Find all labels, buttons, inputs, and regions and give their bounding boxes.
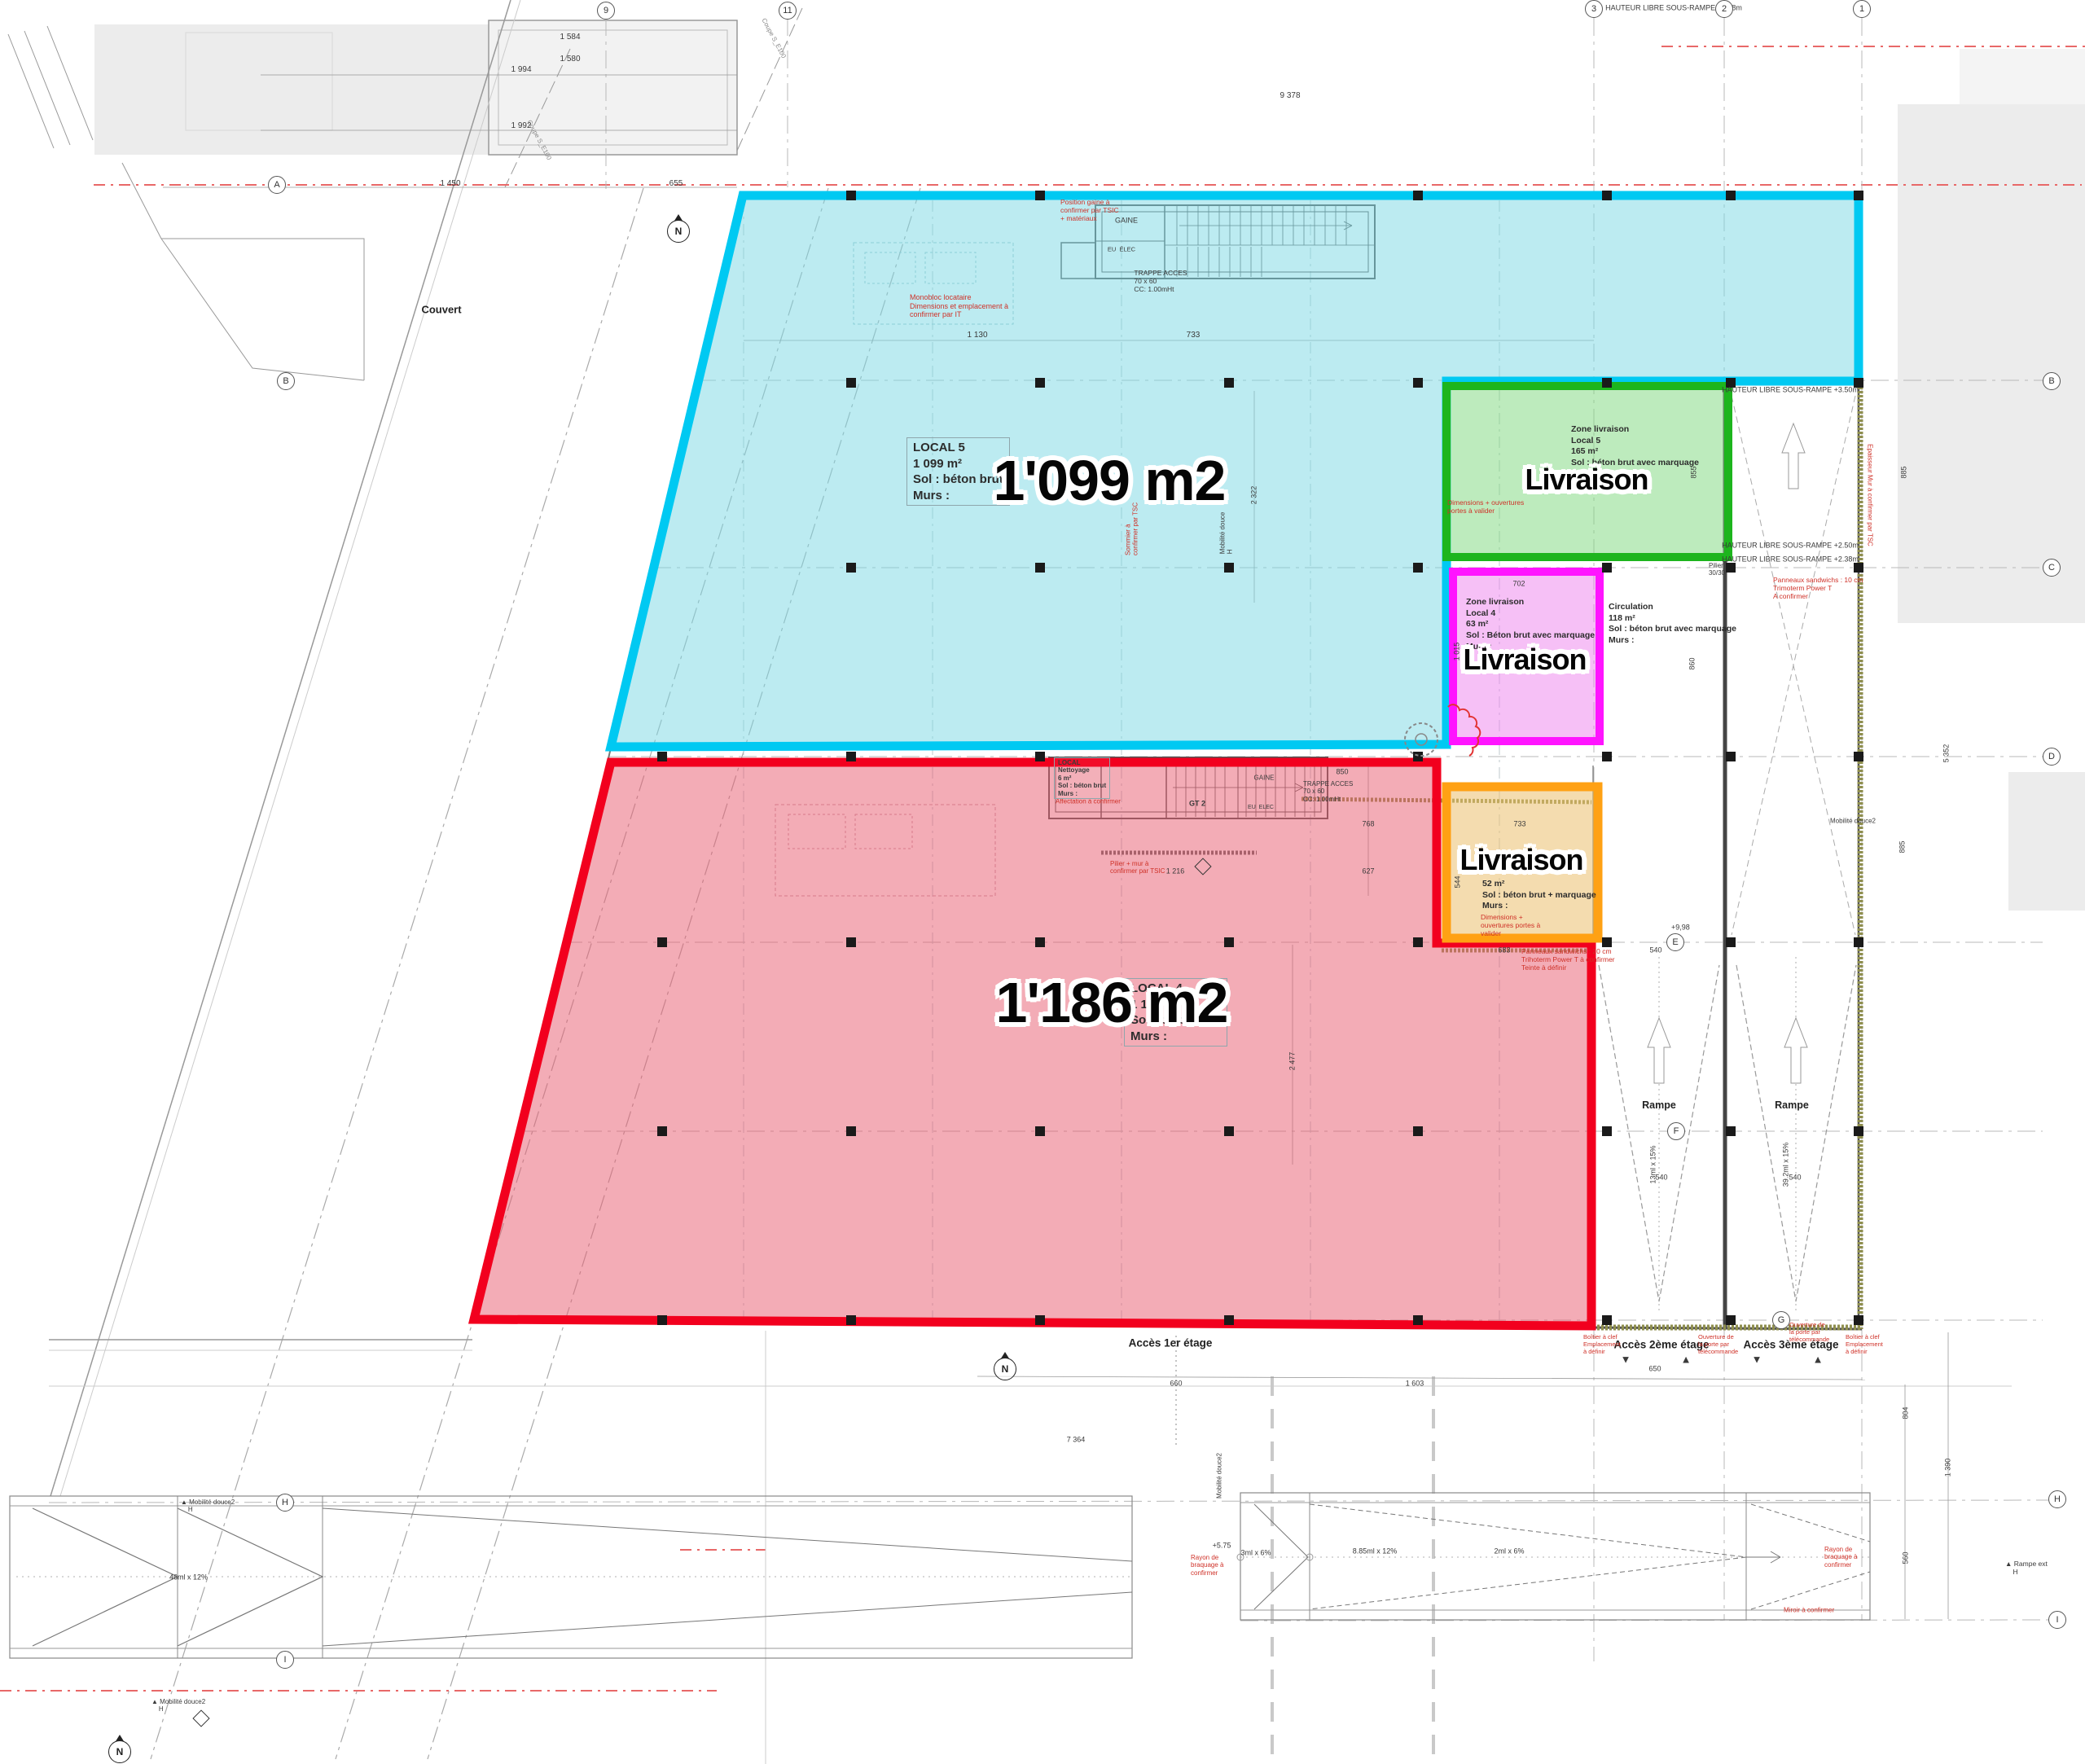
mob-douce2-a: Mobilité douce2 — [1215, 1453, 1222, 1499]
level-998: +9,98 — [1671, 924, 1690, 932]
acces3-arrow-up: ▲ — [1813, 1353, 1824, 1365]
note-boitier-2: Boîtier à clef Emplacement à définir — [1846, 1334, 1883, 1356]
dim-7364: 7 364 — [1067, 1436, 1086, 1445]
coupe-label-1: Coupe S_E100 — [525, 119, 553, 161]
acces-2-label: Accès 2ème étage — [1613, 1339, 1709, 1351]
grid-bubble-1: 1 — [1853, 0, 1871, 18]
grid-bubble-D: D — [2043, 748, 2061, 766]
dim-560: 560 — [1902, 1551, 1911, 1564]
grid-bubble-9: 9 — [597, 2, 615, 20]
hlsr-250: HAUTEUR LIBRE SOUS-RAMPE +2.50m — [1722, 542, 1859, 551]
note-dim-ouvertures-green: Dimensions + ouvertures portes à valider — [1447, 498, 1524, 515]
rampe-left-label: Rampe — [1642, 1099, 1676, 1111]
trappe-top-label: TRAPPE ACCES 70 x 60 CC: 1.00mHt — [1134, 269, 1187, 293]
note-panneaux-10: Panneaux sandwichs : 10 cm Trimoterm Pow… — [1773, 576, 1863, 600]
dim-1603: 1 603 — [1406, 1380, 1424, 1389]
grid-bubble-H: H — [2048, 1490, 2066, 1508]
mob-douce2-d: ▲ Mobilité douce2 H — [151, 1698, 205, 1714]
dim-733-top: 733 — [1187, 331, 1201, 340]
grid-bubble-B: B — [2043, 372, 2061, 390]
grid-bubble-B: B — [277, 372, 295, 390]
livraison-52-info: 52 m² Sol : béton brut + marquage Murs : — [1482, 879, 1596, 912]
dim-733-mid: 733 — [1513, 820, 1525, 829]
dim-660: 660 — [1170, 1380, 1182, 1389]
note-rayon-1: Rayon de braquage à confirmer — [1191, 1554, 1223, 1577]
note-epaisseur-mur: Epaisseur Mur à confirmer par TSC — [1866, 444, 1873, 546]
livraison-label-local4: Livraison — [1463, 643, 1586, 677]
grid-bubble-E: E — [1666, 933, 1684, 951]
dim-1580: 1 580 — [560, 55, 580, 64]
dim-1390: 1 390 — [1944, 1459, 1953, 1477]
grid-bubble-F: F — [1667, 1122, 1685, 1140]
note-ouverture-1: Ouverture de la porte par télécommande — [1698, 1334, 1738, 1356]
mob-douce2-c: ▲ Mobilité douce2 H — [181, 1499, 235, 1514]
dim-544: 544 — [1454, 875, 1463, 888]
dim-1130: 1 130 — [967, 331, 987, 340]
grid-bubble-A: A — [268, 176, 286, 194]
dim-885-a: 885 — [1900, 466, 1909, 478]
rampe-ext-label: ▲ Rampe ext H — [2005, 1560, 2048, 1576]
note-rayon-2: Rayon de braquage à confirmer — [1824, 1546, 1857, 1569]
north-arrow-icon: N — [108, 1740, 131, 1763]
dim-627: 627 — [1362, 867, 1374, 876]
dim-2322: 2 322 — [1250, 486, 1259, 505]
note-dim-ouvertures-orange: Dimensions + ouvertures portes à valider — [1481, 913, 1540, 937]
dim-9378: 9 378 — [1280, 91, 1300, 101]
dim-850: 850 — [1336, 768, 1348, 777]
dim-655: 655 — [669, 179, 683, 189]
note-panneaux-20: Panneaux sandwichs : 20 cm Trihoterm Pow… — [1521, 947, 1615, 972]
dim-683: 683 — [1498, 946, 1510, 955]
ramp-46ml: 46ml x 12% — [169, 1573, 208, 1582]
eu-elec-mid-label: EU ELEC — [1248, 805, 1274, 811]
mobilite-douce-cyan: Mobilité douce H — [1219, 512, 1235, 555]
grid-bubble-I: I — [2048, 1611, 2066, 1629]
note-pilier-mur: Pilier + mur à confirmer par TSIC — [1110, 860, 1165, 875]
note-miroir: Miroir à confirmer — [1784, 1606, 1834, 1613]
floor-plan-page: Couvert Rampe Rampe Accès 1er étage Accè… — [0, 0, 2085, 1764]
acces2-arrow-down: ▼ — [1621, 1353, 1631, 1365]
level-575: +5.75 — [1213, 1542, 1231, 1551]
pilier-3030: Pilier 30/30 — [1709, 562, 1725, 577]
dim-1584: 1 584 — [560, 33, 580, 42]
dim-804: 804 — [1902, 1406, 1911, 1419]
local-nettoyage-box: LOCAL Nettoyage 6 m² Sol : béton brut Mu… — [1054, 757, 1110, 799]
gaine-top-label: GAINE — [1115, 217, 1138, 226]
dim-702: 702 — [1512, 580, 1525, 589]
dim-1015: 1 015 — [1453, 643, 1462, 661]
dim-855: 855 — [1690, 466, 1699, 478]
gaine-mid-label: GAINE — [1254, 774, 1275, 781]
hlsr-238: HAUTEUR LIBRE SOUS-RAMPE +2.38m — [1722, 555, 1859, 564]
gt2-label: GT 2 — [1189, 800, 1205, 809]
dim-540-c: 540 — [1789, 1174, 1801, 1183]
grid-bubble-11: 11 — [779, 2, 797, 20]
dim-540-b: 540 — [1655, 1174, 1667, 1183]
ramp-2ml: 2ml x 6% — [1494, 1547, 1524, 1556]
note-monobloc: Monobloc locataire Dimensions et emplace… — [910, 293, 1008, 319]
dim-5352: 5 352 — [1942, 744, 1951, 763]
grid-bubble-I: I — [276, 1651, 294, 1669]
dim-540-a: 540 — [1649, 946, 1661, 955]
ramp-3ml: 3ml x 6% — [1240, 1549, 1271, 1558]
dim-650: 650 — [1648, 1365, 1661, 1374]
grid-bubble-G: G — [1772, 1311, 1790, 1329]
dim-1216: 1 216 — [1166, 867, 1185, 876]
north-arrow-icon: N — [994, 1358, 1016, 1380]
north-arrow-icon: N — [667, 220, 690, 243]
coupe-label-2: Coupe S_E100 — [760, 17, 788, 59]
grid-bubble-3: 3 — [1585, 0, 1603, 18]
dim-2477: 2 477 — [1288, 1052, 1297, 1071]
note-ouverture-2: Ouverture de la porte par télécommande — [1789, 1322, 1829, 1344]
note-boitier-1: Boîtier à clef Emplacement à définir — [1583, 1334, 1621, 1356]
grid-bubble-C: C — [2043, 559, 2061, 577]
mob-douce2-b: Mobilité douce2 — [1830, 817, 1876, 824]
note-gaine: Position gaine à confirmer par TSIC + ma… — [1060, 198, 1119, 222]
dim-885-b: 885 — [1898, 840, 1907, 853]
label-layer: Couvert Rampe Rampe Accès 1er étage Accè… — [0, 0, 2085, 1764]
acces-1-label: Accès 1er étage — [1129, 1337, 1213, 1349]
ramp-885ml: 8.85ml x 12% — [1353, 1547, 1398, 1556]
rampe-right-label: Rampe — [1775, 1099, 1809, 1111]
dim-1994: 1 994 — [511, 65, 531, 75]
acces2-arrow-up: ▲ — [1681, 1353, 1692, 1365]
couvert-label: Couvert — [421, 304, 461, 316]
livraison-label-local5: Livraison — [1525, 463, 1648, 497]
grid-bubble-H: H — [276, 1494, 294, 1512]
grid-bubble-2: 2 — [1715, 0, 1733, 18]
hlsr-350: HAUTEUR LIBRE SOUS-RAMPE +3.50m — [1722, 386, 1859, 395]
dim-768: 768 — [1362, 820, 1374, 829]
area-label-local4: 1'186 m2 — [996, 970, 1228, 1035]
eu-elec-top-label: EU ÉLEC — [1108, 247, 1135, 254]
livraison-label-52: Livraison — [1459, 843, 1582, 877]
acces3-arrow-down: ▼ — [1752, 1353, 1762, 1365]
circulation-info: Circulation 118 m² Sol : béton brut avec… — [1609, 602, 1736, 647]
trappe-mid-label: TRAPPE ACCES 70 x 60 CC: 1.00mHt — [1303, 780, 1353, 803]
dim-1450: 1 450 — [440, 179, 460, 189]
dim-860: 860 — [1688, 657, 1697, 669]
area-label-local5: 1'099 m2 — [994, 448, 1226, 513]
